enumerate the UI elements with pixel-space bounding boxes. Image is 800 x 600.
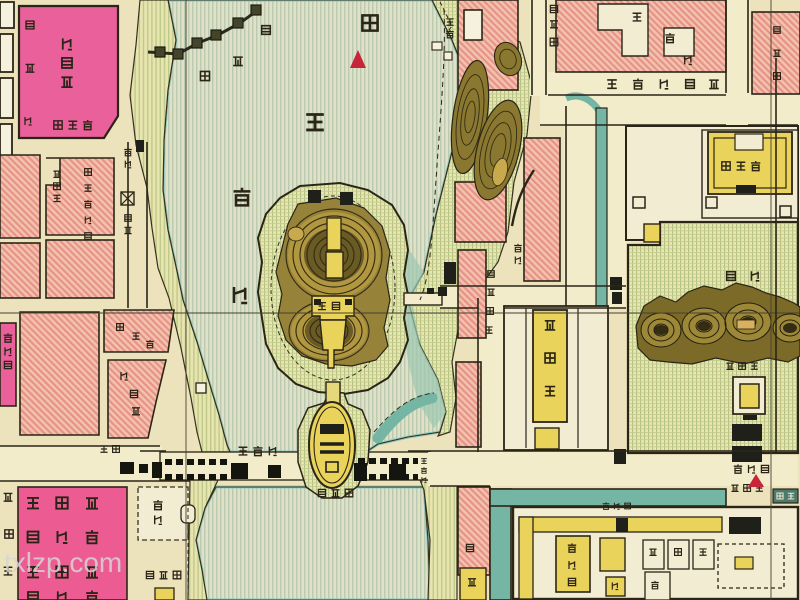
svg-text:txlzp.com: txlzp.com xyxy=(4,547,122,578)
